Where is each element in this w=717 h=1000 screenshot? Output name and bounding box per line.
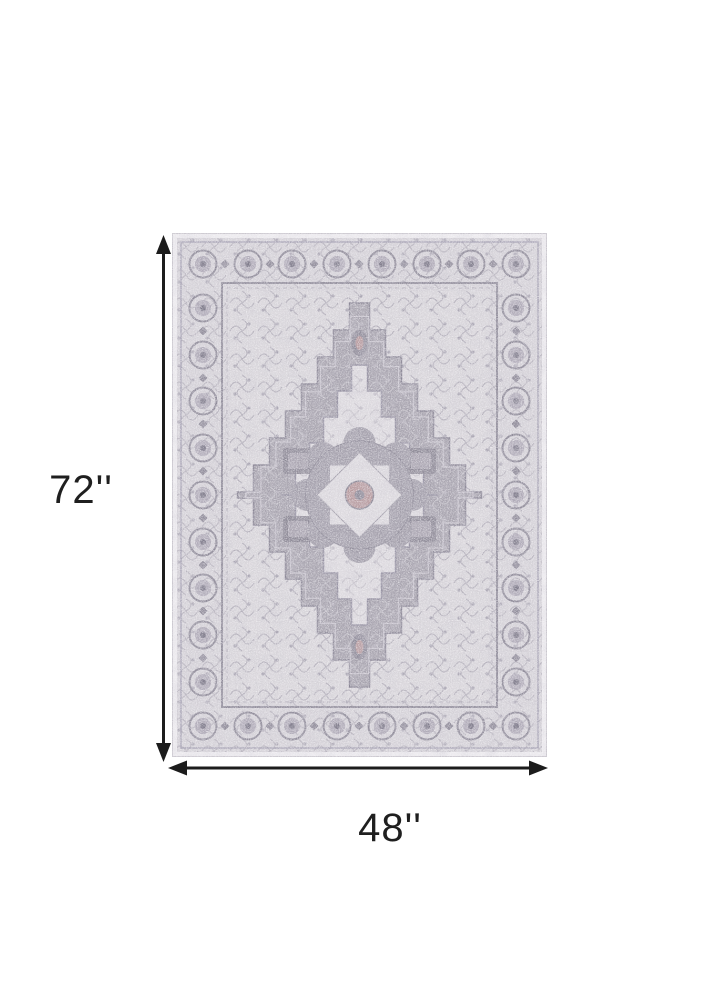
product-image-canvas: 72'' 48'' — [0, 0, 717, 1000]
height-arrow-icon — [156, 235, 171, 762]
rug-white-wash — [172, 233, 547, 757]
width-arrow-icon — [168, 761, 548, 776]
height-dimension-label: 72'' — [36, 470, 126, 510]
rug-image — [172, 233, 547, 757]
width-dimension-label: 48'' — [328, 808, 452, 848]
rug-graphic — [172, 233, 547, 757]
